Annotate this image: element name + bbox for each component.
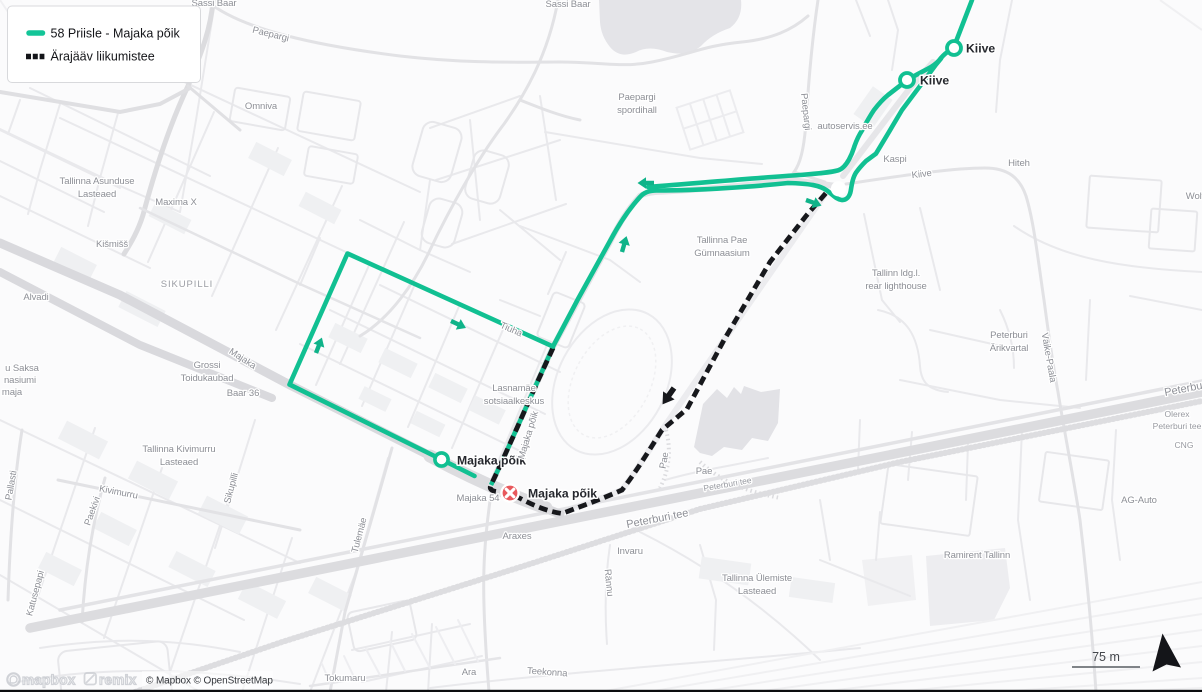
svg-text:Ramirent Tallinn: Ramirent Tallinn <box>944 550 1010 561</box>
svg-text:SIKUPILLI: SIKUPILLI <box>161 279 213 290</box>
svg-text:Lasnamäe: Lasnamäe <box>492 383 536 394</box>
svg-text:AG-Auto: AG-Auto <box>1121 495 1157 506</box>
svg-text:Invaru: Invaru <box>617 546 643 557</box>
svg-text:Kaspi: Kaspi <box>883 154 906 165</box>
svg-text:spordihall: spordihall <box>617 105 657 116</box>
svg-text:Lasteaed: Lasteaed <box>78 189 116 200</box>
svg-text:Maxima X: Maxima X <box>155 197 197 208</box>
svg-text:© Mapbox © OpenStreetMap: © Mapbox © OpenStreetMap <box>146 676 273 687</box>
svg-text:Araxes: Araxes <box>503 531 532 542</box>
svg-text:autoservis.ee: autoservis.ee <box>817 121 872 132</box>
svg-text:Wolf: Wolf <box>1186 191 1202 202</box>
svg-text:Alvadi: Alvadi <box>23 292 48 303</box>
svg-text:maja: maja <box>2 387 23 398</box>
svg-text:58 Priisle - Majaka põik: 58 Priisle - Majaka põik <box>51 27 181 41</box>
svg-text:Tallinna Asunduse: Tallinna Asunduse <box>60 176 135 187</box>
svg-text:Kišmišš: Kišmišš <box>96 239 128 250</box>
svg-text:CNG: CNG <box>1175 440 1194 450</box>
svg-text:Gümnaasium: Gümnaasium <box>694 248 750 259</box>
svg-text:Olerex: Olerex <box>1164 409 1190 419</box>
svg-text:Tallinna Pae: Tallinna Pae <box>697 235 748 246</box>
svg-text:sotsiaalkeskus: sotsiaalkeskus <box>484 396 545 407</box>
svg-text:Peterburi tee: Peterburi tee <box>1153 421 1202 431</box>
svg-text:Lasteaed: Lasteaed <box>738 586 776 597</box>
svg-text:Majaka põik: Majaka põik <box>528 487 597 501</box>
svg-text:Tallinn ldg.l.: Tallinn ldg.l. <box>872 268 920 279</box>
svg-text:Baar 36: Baar 36 <box>227 388 260 399</box>
svg-text:Tallinna Ülemiste: Tallinna Ülemiste <box>722 573 792 584</box>
svg-text:remix: remix <box>99 673 137 688</box>
svg-text:mapbox: mapbox <box>22 673 76 688</box>
svg-text:Hiteh: Hiteh <box>1008 158 1030 169</box>
svg-text:Ara: Ara <box>462 667 477 678</box>
svg-text:Peterburi: Peterburi <box>990 330 1028 341</box>
svg-text:Ärikvartal: Ärikvartal <box>990 343 1029 354</box>
svg-text:Majaka 54: Majaka 54 <box>457 493 500 504</box>
svg-text:Paepargi: Paepargi <box>618 92 655 103</box>
svg-text:Lasteaed: Lasteaed <box>160 457 198 468</box>
svg-text:Tokumaru: Tokumaru <box>325 673 366 684</box>
svg-text:Grossi: Grossi <box>194 360 221 371</box>
svg-text:Omniva: Omniva <box>245 101 278 112</box>
svg-text:Toidukaubad: Toidukaubad <box>181 373 234 384</box>
svg-text:u Saksa: u Saksa <box>5 363 39 374</box>
svg-text:nasiumi: nasiumi <box>4 375 36 386</box>
svg-text:Sassi Baar: Sassi Baar <box>546 0 591 10</box>
svg-text:Tallinna Kivimurru: Tallinna Kivimurru <box>142 444 215 455</box>
svg-text:rear lighthouse: rear lighthouse <box>865 281 926 292</box>
svg-text:Kiive: Kiive <box>966 42 995 56</box>
svg-text:Pae: Pae <box>696 466 713 477</box>
svg-text:Kiive: Kiive <box>920 74 949 88</box>
svg-text:Ärajääv liikumistee: Ärajääv liikumistee <box>51 50 155 64</box>
svg-text:75 m: 75 m <box>1092 650 1120 664</box>
